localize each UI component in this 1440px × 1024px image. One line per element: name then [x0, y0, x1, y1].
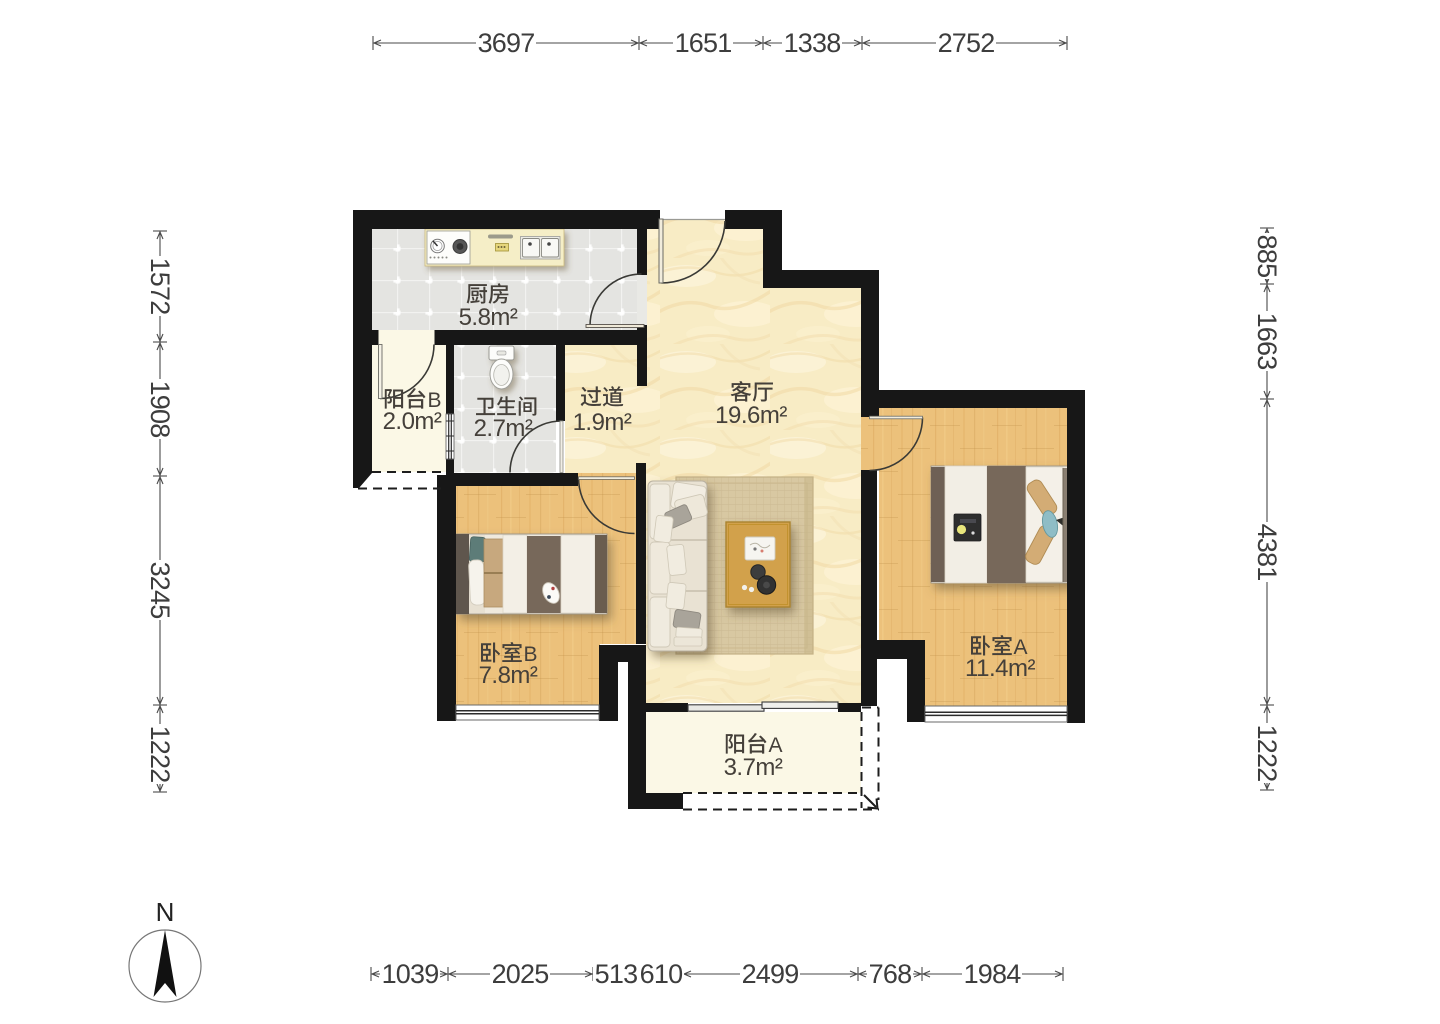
svg-text:4381: 4381 [1252, 524, 1282, 581]
svg-text:2752: 2752 [938, 28, 995, 58]
svg-text:1984: 1984 [964, 959, 1022, 989]
svg-text:3697: 3697 [478, 28, 535, 58]
svg-text:610: 610 [640, 959, 683, 989]
svg-text:2.0m²: 2.0m² [383, 408, 442, 435]
svg-text:768: 768 [869, 959, 912, 989]
svg-text:5.8m²: 5.8m² [459, 304, 518, 331]
svg-text:N: N [156, 897, 175, 927]
svg-text:11.4m²: 11.4m² [965, 655, 1035, 682]
svg-text:2025: 2025 [492, 959, 549, 989]
svg-text:7.8m²: 7.8m² [479, 662, 538, 689]
svg-text:1222: 1222 [145, 726, 175, 783]
svg-text:1039: 1039 [382, 959, 439, 989]
svg-text:885: 885 [1252, 235, 1282, 278]
svg-text:19.6m²: 19.6m² [715, 402, 787, 429]
svg-text:1663: 1663 [1252, 313, 1282, 370]
svg-text:3245: 3245 [145, 562, 175, 619]
svg-text:2.7m²: 2.7m² [474, 415, 533, 442]
svg-text:1908: 1908 [145, 381, 175, 438]
svg-text:1572: 1572 [145, 258, 175, 315]
svg-text:1651: 1651 [675, 28, 732, 58]
svg-text:513: 513 [595, 959, 638, 989]
svg-text:3.7m²: 3.7m² [724, 754, 783, 781]
svg-text:1.9m²: 1.9m² [573, 409, 632, 436]
svg-text:1338: 1338 [784, 28, 841, 58]
svg-text:2499: 2499 [742, 959, 799, 989]
svg-text:1222: 1222 [1252, 725, 1282, 782]
